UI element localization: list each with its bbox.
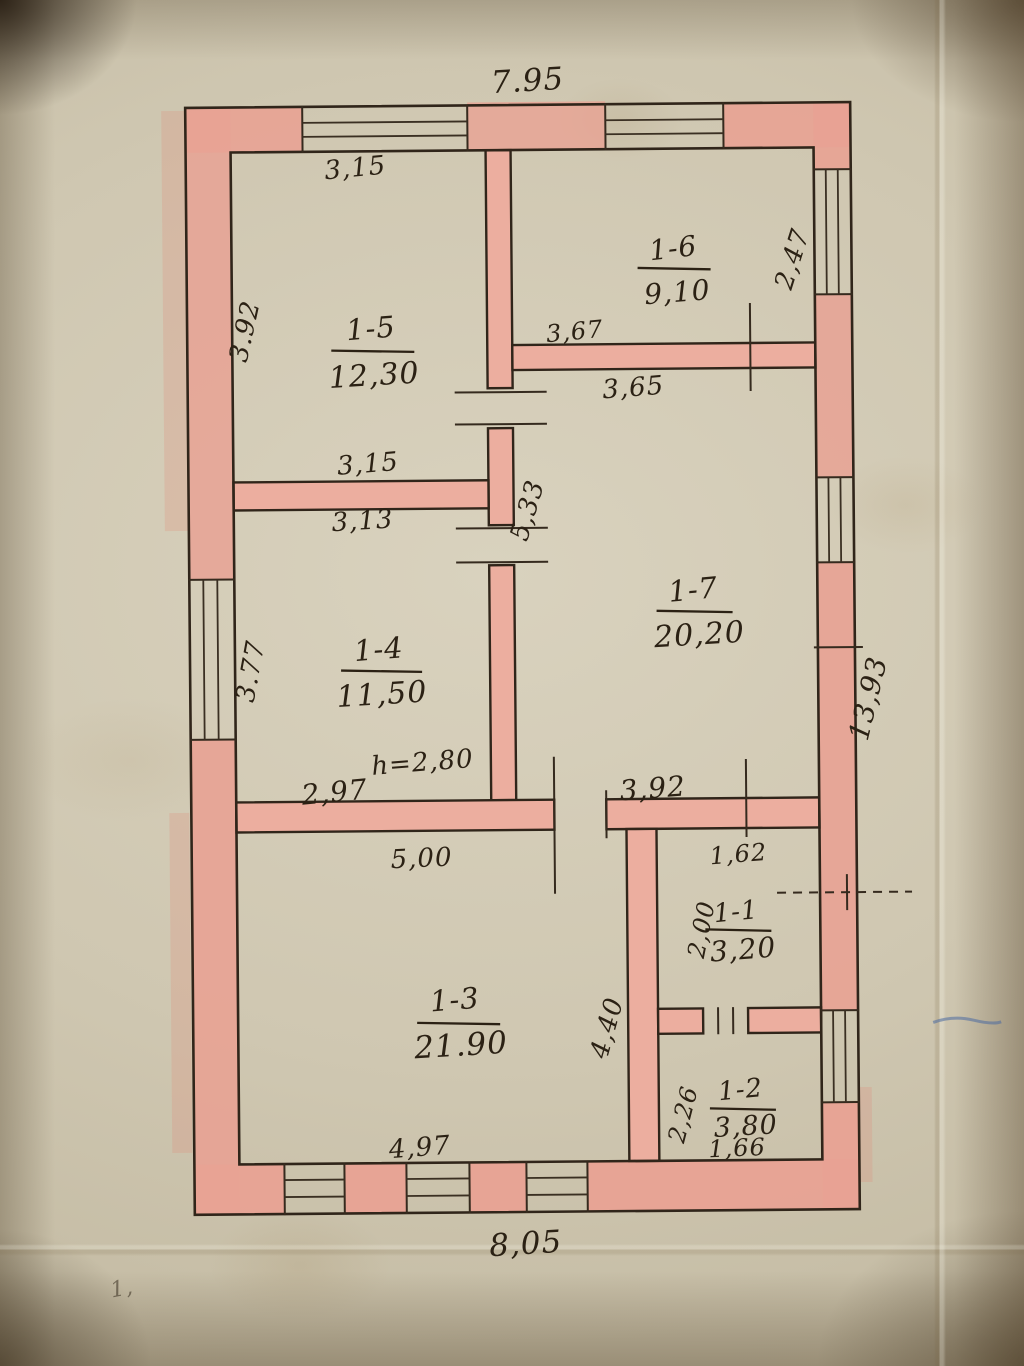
- room-label-1-3: 1-3 21.90: [412, 980, 509, 1066]
- partition-corridor-left: [236, 800, 554, 833]
- outer-wall-line: [185, 102, 860, 1215]
- dim-r12-bottom: 1,66: [708, 1133, 767, 1163]
- windows: [199, 118, 846, 1198]
- dim-r11-top: 1,62: [709, 838, 768, 870]
- wall-segment: [191, 739, 240, 1214]
- room-area: 11,50: [336, 674, 429, 714]
- wall-segment: [815, 294, 854, 477]
- room-area: 20,20: [652, 615, 746, 656]
- opening-tick-lines: [455, 303, 865, 1035]
- fraction-line: [417, 1022, 500, 1025]
- stray-blue-ink-mark: [933, 1018, 1001, 1024]
- dim-r13-bottom: 4,97: [387, 1131, 452, 1166]
- room-number: 1-1: [712, 895, 760, 929]
- note-ceiling-height: h=2,80: [370, 744, 474, 782]
- window-jamb-lines: [185, 102, 860, 1215]
- room-label-1-4: 1-4 11,50: [335, 630, 428, 715]
- partition-r11-r12-left: [658, 1008, 703, 1033]
- partition-hall-upper: [486, 150, 513, 388]
- partition-r11-r12-right: [748, 1007, 821, 1033]
- room-label-1-7: 1-7 20,20: [652, 570, 746, 655]
- room-area: 12,30: [328, 356, 421, 396]
- wall-segment: [813, 102, 851, 169]
- room-number: 1-4: [353, 630, 405, 668]
- wall-segment: [469, 1162, 526, 1212]
- fraction-line: [638, 267, 711, 270]
- room-area: 9,10: [643, 273, 712, 311]
- room-number: 1-7: [667, 570, 720, 609]
- room-number: 1-6: [647, 229, 699, 267]
- room-label-1-6: 1-6 9,10: [637, 229, 711, 311]
- crayon-smudge: [860, 1087, 873, 1182]
- crayon-smudge: [169, 813, 192, 1153]
- wall-outlines: [185, 102, 860, 1215]
- dim-corridor-left: 2,97: [299, 773, 369, 812]
- room-label-1-5: 1-5 12,30: [327, 309, 420, 396]
- dim-corridor-right: 3,92: [618, 769, 687, 807]
- partition-r13-r11: [626, 829, 659, 1161]
- fraction-line: [341, 670, 422, 673]
- dim-overall-top: 7.95: [490, 61, 565, 101]
- dim-r16-right: 2,47: [769, 225, 817, 294]
- pencil-corner-note: 1,: [108, 1275, 135, 1304]
- dim-r15-bottom: 3,15: [336, 447, 400, 482]
- room-number: 1-2: [717, 1073, 765, 1107]
- room-number: 1-3: [429, 981, 481, 1019]
- dim-partition-16-17-bottom: 3,65: [601, 371, 665, 406]
- fraction-line: [657, 610, 733, 613]
- dim-r14-top: 3,13: [331, 505, 395, 539]
- dim-r12-left: 2,26: [662, 1083, 704, 1147]
- wall-segment: [587, 1159, 859, 1211]
- dim-r14-left: 3.77: [231, 638, 272, 704]
- room-number: 1-5: [345, 309, 397, 347]
- room-area: 3,20: [709, 931, 778, 969]
- dim-r15-top: 3,15: [323, 151, 387, 187]
- partition-hall-mid: [488, 428, 514, 525]
- floorplan-photo: 1-5 12,30 1-6 9,10 1-7 20,20 1-4: [0, 0, 1024, 1366]
- dim-overall-bottom: 8,05: [488, 1224, 563, 1264]
- fraction-line: [331, 350, 414, 353]
- dim-partition-16-17-top: 3,67: [545, 315, 605, 348]
- dim-partition-13-right: 4,40: [584, 994, 630, 1063]
- wall-segment-chimney: [467, 101, 605, 150]
- dim-r13-top: 5,00: [390, 843, 453, 876]
- wall-segment: [817, 562, 858, 1010]
- partition-hall-lower: [489, 565, 516, 800]
- dimension-labels: 7.95 3,15 3.92 2,47 3,67 3,65 3,15 3,13 …: [221, 58, 899, 1267]
- wall-segment: [194, 1164, 284, 1215]
- wall-segment: [344, 1163, 406, 1214]
- window-glazing-lines: [199, 118, 846, 1198]
- room-area: 21.90: [412, 1025, 509, 1067]
- dashed-extension-line: [777, 892, 912, 893]
- exterior-walls: [185, 99, 860, 1215]
- floorplan-drawing: 1-5 12,30 1-6 9,10 1-7 20,20 1-4: [0, 0, 1024, 1366]
